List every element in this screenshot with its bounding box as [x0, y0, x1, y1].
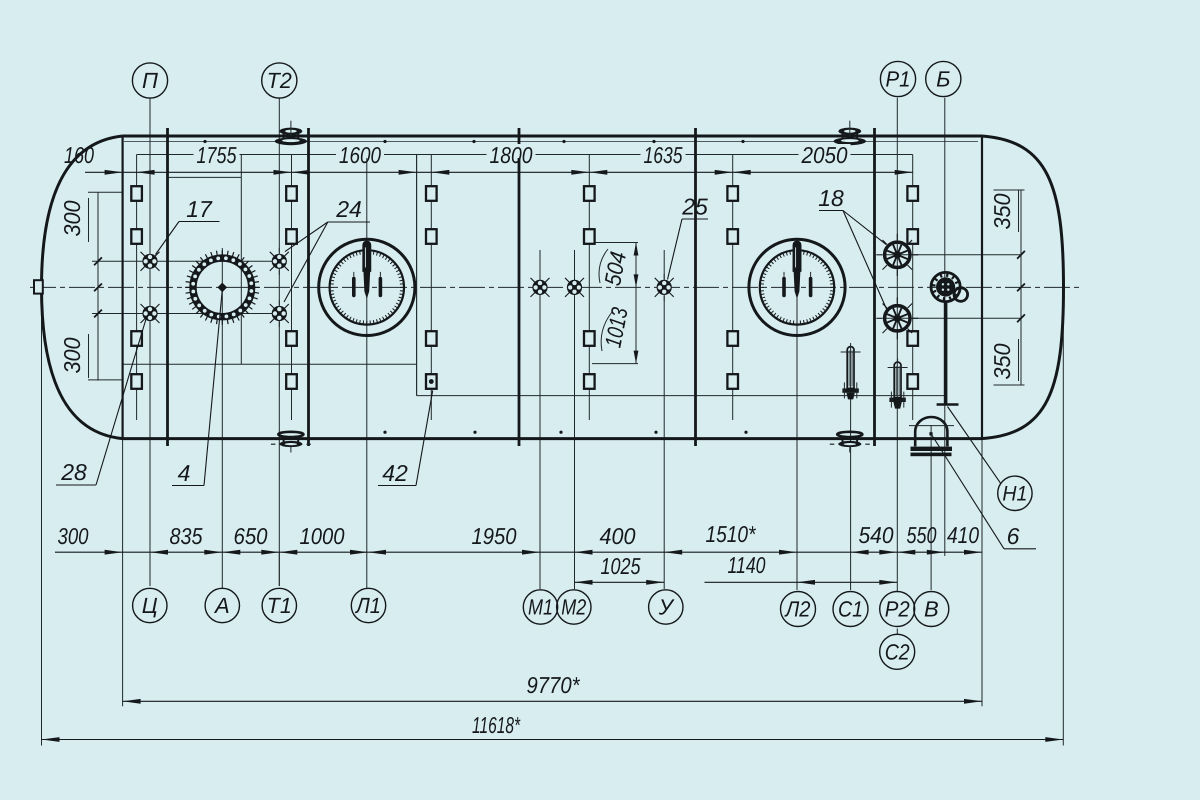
svg-text:1025: 1025 [601, 553, 641, 579]
svg-text:300: 300 [59, 337, 85, 373]
svg-text:1800: 1800 [490, 142, 533, 168]
svg-text:1755: 1755 [197, 142, 237, 168]
svg-text:У: У [658, 595, 675, 620]
svg-text:1600: 1600 [339, 142, 381, 168]
svg-text:9770*: 9770* [527, 672, 581, 698]
svg-text:Р1: Р1 [886, 67, 911, 92]
svg-text:550: 550 [907, 522, 937, 548]
svg-text:835: 835 [170, 523, 203, 549]
svg-text:В: В [924, 597, 939, 622]
svg-text:400: 400 [600, 523, 636, 549]
svg-text:Ц: Ц [142, 593, 158, 618]
svg-text:24: 24 [335, 196, 362, 222]
svg-text:С1: С1 [838, 597, 863, 622]
svg-text:С2: С2 [885, 639, 910, 664]
svg-text:25: 25 [681, 194, 708, 220]
svg-text:18: 18 [818, 185, 844, 211]
svg-text:Л2: Л2 [784, 597, 811, 622]
svg-text:42: 42 [382, 460, 408, 486]
svg-text:350: 350 [989, 343, 1015, 379]
svg-text:1140: 1140 [728, 552, 766, 578]
svg-text:160: 160 [64, 142, 94, 168]
svg-text:11618*: 11618* [472, 712, 521, 738]
svg-text:Б: Б [936, 67, 950, 92]
svg-text:4: 4 [178, 460, 191, 486]
svg-text:410: 410 [947, 522, 979, 548]
svg-text:М2: М2 [561, 595, 586, 620]
svg-text:Н1: Н1 [1002, 483, 1027, 506]
svg-text:650: 650 [234, 523, 268, 549]
svg-text:300: 300 [59, 200, 85, 236]
svg-text:2050: 2050 [801, 142, 848, 168]
svg-text:540: 540 [859, 522, 894, 548]
svg-text:1950: 1950 [472, 523, 517, 549]
svg-text:Р2: Р2 [885, 597, 910, 622]
svg-text:1510*: 1510* [706, 521, 757, 547]
svg-text:300: 300 [58, 523, 89, 549]
svg-text:1635: 1635 [644, 142, 683, 168]
svg-text:350: 350 [989, 193, 1015, 229]
svg-text:6: 6 [1007, 523, 1020, 549]
svg-text:П: П [142, 68, 158, 93]
svg-text:28: 28 [60, 459, 87, 485]
svg-text:Л1: Л1 [354, 593, 381, 618]
svg-text:М1: М1 [528, 595, 553, 620]
svg-text:1000: 1000 [300, 523, 345, 549]
svg-text:17: 17 [186, 196, 213, 222]
svg-text:А: А [213, 593, 230, 618]
svg-text:Т2: Т2 [267, 68, 292, 93]
svg-text:Т1: Т1 [267, 593, 292, 618]
